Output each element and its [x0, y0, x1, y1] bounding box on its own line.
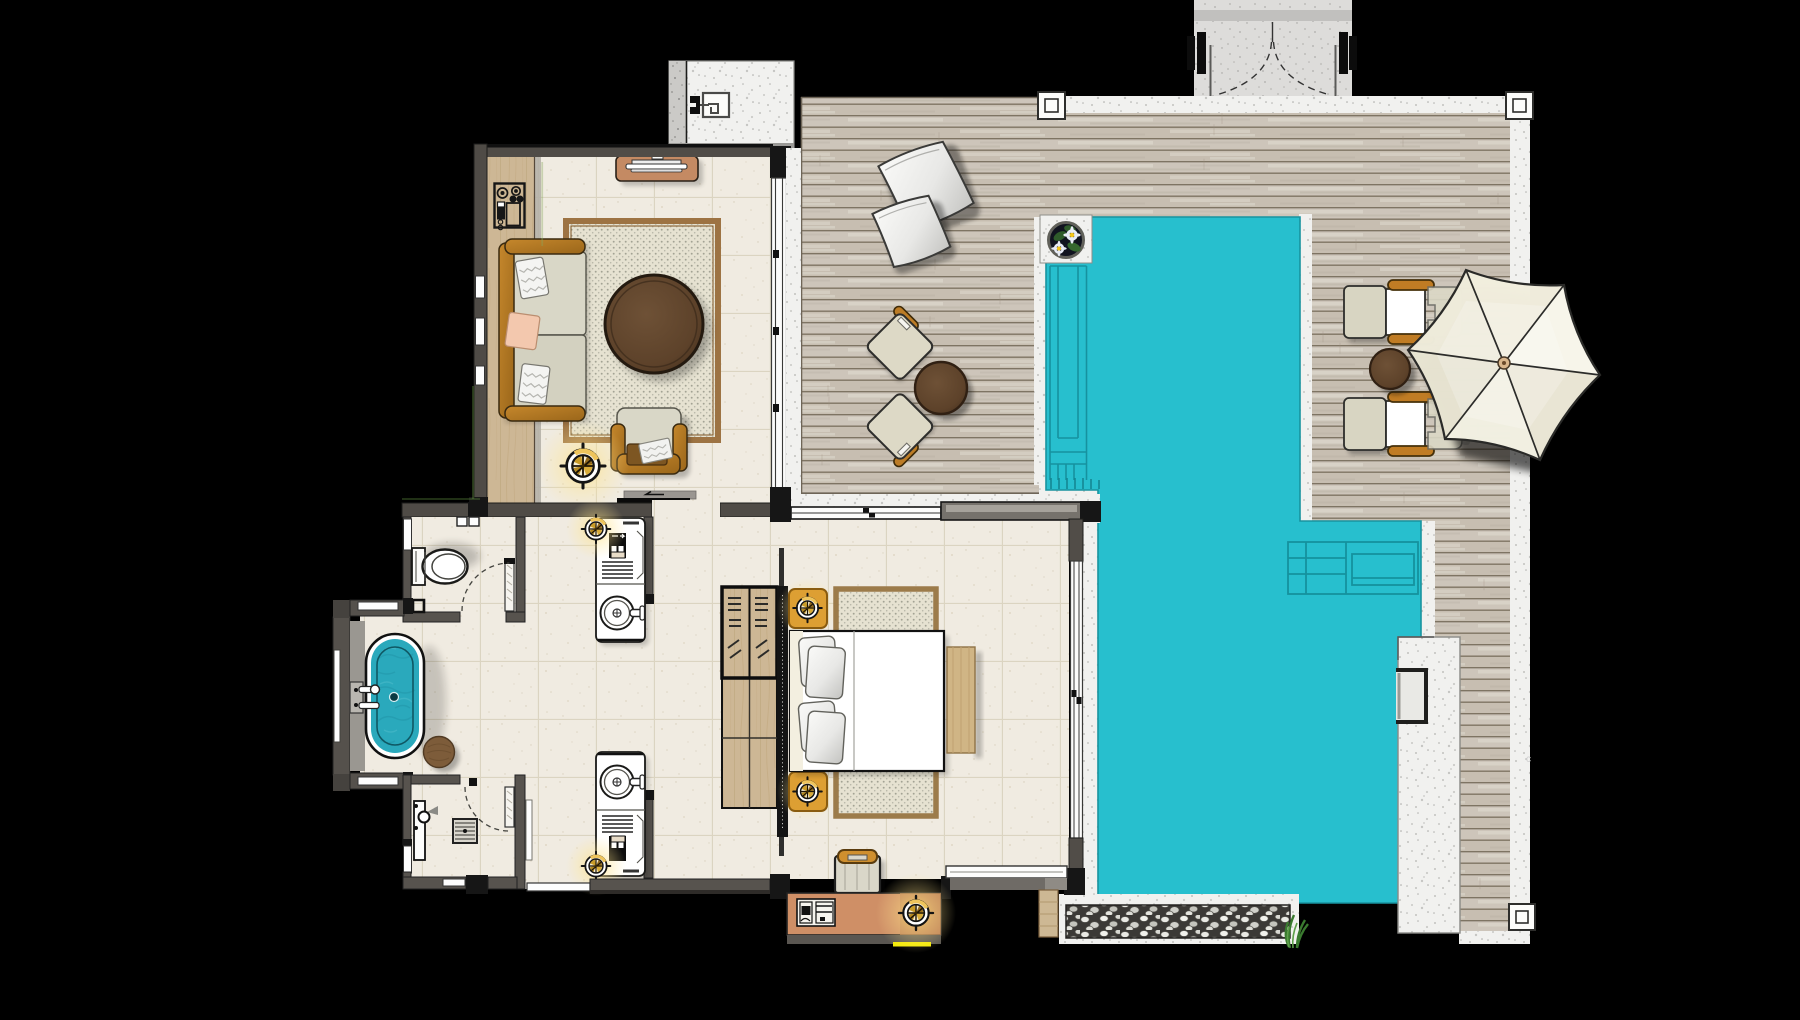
- svg-text:c: c: [1526, 754, 1531, 765]
